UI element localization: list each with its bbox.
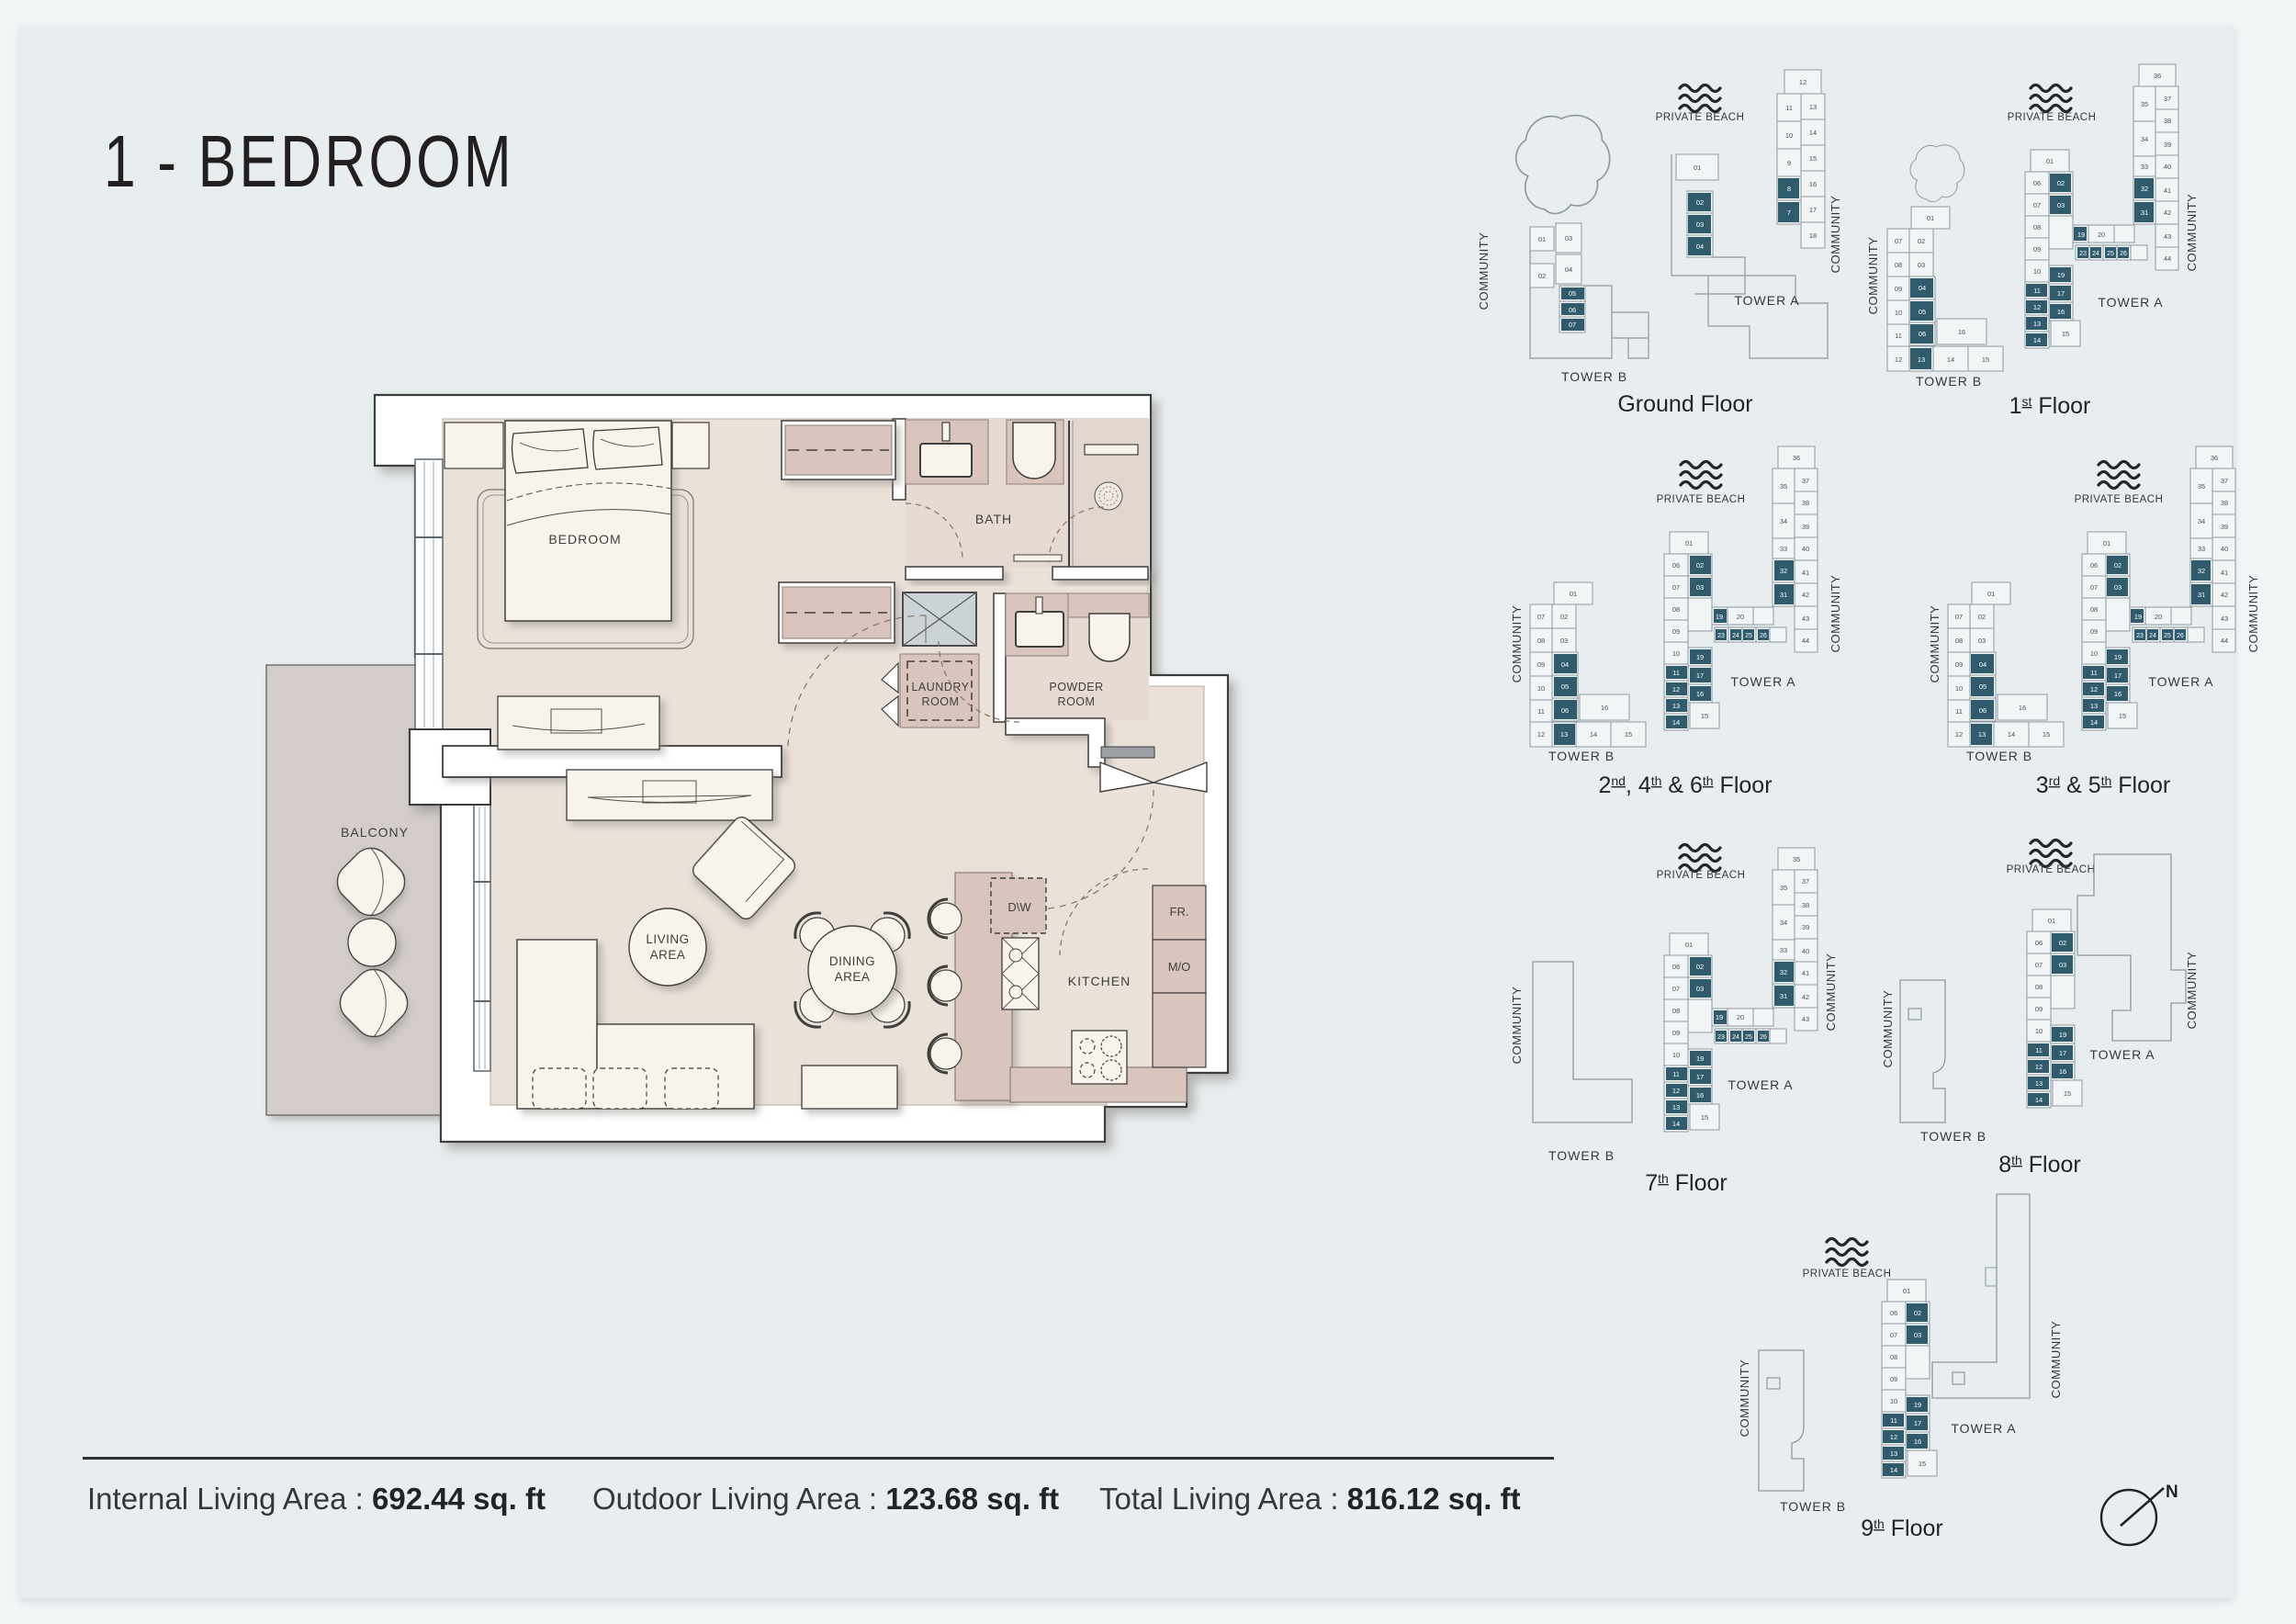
- svg-text:16: 16: [1958, 328, 1965, 336]
- svg-text:11: 11: [1890, 1416, 1897, 1425]
- svg-text:13: 13: [2090, 702, 2098, 710]
- svg-text:33: 33: [1780, 946, 1787, 954]
- svg-text:34: 34: [1780, 919, 1787, 927]
- svg-text:35: 35: [1793, 855, 1800, 863]
- svg-text:06: 06: [2035, 939, 2043, 947]
- svg-text:17: 17: [1809, 206, 1817, 214]
- svg-text:12: 12: [1955, 730, 1963, 739]
- svg-text:09: 09: [1672, 1029, 1680, 1037]
- svg-text:07: 07: [1569, 321, 1576, 329]
- svg-text:03: 03: [1696, 220, 1704, 229]
- svg-text:42: 42: [1802, 993, 1809, 1001]
- svg-text:25: 25: [2164, 633, 2171, 639]
- svg-text:19: 19: [1696, 1054, 1704, 1063]
- svg-text:16: 16: [2059, 1067, 2066, 1076]
- svg-text:06: 06: [1979, 706, 1986, 715]
- svg-text:05: 05: [1919, 308, 1926, 316]
- svg-text:43: 43: [1802, 615, 1809, 623]
- svg-text:25: 25: [1745, 633, 1752, 639]
- svg-text:COMMUNITY: COMMUNITY: [1829, 575, 1842, 653]
- svg-text:PRIVATE BEACH: PRIVATE BEACH: [2075, 494, 2164, 505]
- svg-text:17: 17: [1914, 1419, 1921, 1427]
- svg-text:23: 23: [1717, 633, 1725, 639]
- svg-text:34: 34: [1780, 517, 1787, 525]
- svg-text:15: 15: [2064, 1089, 2071, 1098]
- svg-text:31: 31: [2198, 591, 2205, 599]
- svg-text:10: 10: [1890, 1397, 1897, 1405]
- svg-text:01: 01: [1903, 1287, 1910, 1295]
- svg-text:41: 41: [1802, 969, 1809, 977]
- svg-text:TOWER A: TOWER A: [2098, 295, 2163, 310]
- svg-text:23: 23: [2079, 251, 2087, 257]
- svg-text:14: 14: [2035, 1096, 2043, 1104]
- svg-text:11: 11: [1785, 104, 1793, 112]
- svg-text:24: 24: [2149, 633, 2156, 639]
- svg-text:07: 07: [1672, 583, 1680, 592]
- svg-text:13: 13: [1890, 1449, 1897, 1458]
- svg-text:14: 14: [2090, 718, 2098, 727]
- svg-text:12: 12: [1799, 78, 1806, 86]
- svg-text:39: 39: [2221, 523, 2228, 531]
- svg-text:39: 39: [2164, 141, 2171, 149]
- svg-text:13: 13: [1809, 103, 1817, 111]
- svg-text:10: 10: [1785, 131, 1793, 140]
- svg-text:COMMUNITY: COMMUNITY: [1477, 232, 1491, 310]
- svg-text:43: 43: [1802, 1015, 1809, 1023]
- svg-text:40: 40: [1802, 545, 1809, 553]
- svg-text:9th Floor: 9th Floor: [1861, 1516, 1943, 1541]
- svg-text:44: 44: [2164, 254, 2171, 263]
- svg-text:14: 14: [1672, 1120, 1680, 1128]
- svg-text:COMMUNITY: COMMUNITY: [1829, 196, 1842, 274]
- svg-text:08: 08: [2033, 223, 2041, 231]
- svg-text:03: 03: [1696, 583, 1704, 592]
- svg-text:41: 41: [2164, 186, 2171, 195]
- svg-text:07: 07: [1537, 613, 1545, 621]
- svg-text:06: 06: [1672, 561, 1680, 570]
- svg-text:12: 12: [2035, 1063, 2043, 1071]
- svg-text:09: 09: [2035, 1005, 2043, 1013]
- svg-text:14: 14: [1809, 129, 1817, 137]
- svg-text:09: 09: [1672, 627, 1680, 636]
- svg-text:03: 03: [1918, 261, 1925, 269]
- svg-text:N: N: [2166, 1483, 2178, 1502]
- svg-text:13: 13: [1918, 355, 1925, 364]
- svg-text:23: 23: [2136, 633, 2144, 639]
- svg-text:05: 05: [1979, 682, 1986, 691]
- svg-text:40: 40: [2164, 163, 2171, 171]
- svg-text:PRIVATE BEACH: PRIVATE BEACH: [1657, 494, 1746, 505]
- svg-text:TOWER B: TOWER B: [1561, 369, 1627, 384]
- svg-text:09: 09: [1895, 285, 1902, 293]
- svg-text:03: 03: [2059, 961, 2066, 969]
- svg-text:12: 12: [1895, 355, 1902, 364]
- svg-text:03: 03: [2057, 201, 2065, 209]
- svg-text:02: 02: [1696, 561, 1704, 570]
- svg-text:24: 24: [1732, 633, 1739, 639]
- svg-text:15: 15: [1701, 1113, 1708, 1122]
- svg-text:35: 35: [2141, 100, 2148, 108]
- svg-text:42: 42: [1802, 591, 1809, 599]
- svg-text:COMMUNITY: COMMUNITY: [1824, 953, 1838, 1032]
- svg-text:07: 07: [1672, 985, 1680, 993]
- svg-text:36: 36: [1793, 454, 1800, 462]
- svg-text:TOWER A: TOWER A: [1728, 1077, 1793, 1092]
- svg-text:04: 04: [1919, 284, 1926, 292]
- svg-text:06: 06: [2033, 179, 2041, 187]
- svg-text:PRIVATE BEACH: PRIVATE BEACH: [2008, 112, 2097, 123]
- svg-text:12: 12: [1672, 1087, 1680, 1095]
- svg-text:13: 13: [1978, 730, 1986, 739]
- svg-text:12: 12: [1672, 685, 1680, 694]
- svg-text:08: 08: [2035, 983, 2043, 991]
- svg-text:01: 01: [1685, 941, 1693, 949]
- svg-text:06: 06: [1569, 306, 1576, 314]
- svg-text:34: 34: [2198, 517, 2205, 525]
- svg-text:03: 03: [1914, 1331, 1921, 1339]
- svg-text:14: 14: [2033, 336, 2041, 344]
- svg-text:02: 02: [1696, 198, 1704, 207]
- svg-text:08: 08: [1955, 637, 1963, 645]
- svg-text:44: 44: [1802, 637, 1809, 645]
- svg-text:10: 10: [2033, 267, 2041, 276]
- svg-text:02: 02: [2059, 939, 2066, 947]
- svg-text:39: 39: [1802, 523, 1809, 531]
- svg-text:08: 08: [2090, 605, 2098, 614]
- svg-text:36: 36: [2211, 454, 2218, 462]
- svg-text:02: 02: [1696, 963, 1704, 971]
- svg-text:20: 20: [2098, 231, 2105, 239]
- svg-text:07: 07: [2090, 583, 2098, 592]
- svg-text:2nd, 4th & 6th Floor: 2nd, 4th & 6th Floor: [1598, 773, 1772, 798]
- svg-text:20: 20: [1737, 1013, 1744, 1021]
- svg-text:26: 26: [1760, 1034, 1767, 1041]
- svg-text:37: 37: [2164, 95, 2171, 103]
- svg-text:9: 9: [1787, 159, 1791, 167]
- svg-text:19: 19: [2114, 653, 2122, 661]
- svg-text:03: 03: [1560, 637, 1568, 645]
- svg-text:TOWER A: TOWER A: [1730, 674, 1795, 689]
- svg-text:09: 09: [1955, 660, 1963, 669]
- svg-text:7th Floor: 7th Floor: [1645, 1170, 1728, 1196]
- svg-text:03: 03: [1978, 637, 1986, 645]
- svg-text:TOWER B: TOWER B: [1966, 749, 2032, 763]
- svg-text:01: 01: [1685, 539, 1693, 547]
- svg-text:04: 04: [1561, 660, 1569, 669]
- svg-text:15: 15: [1919, 1460, 1926, 1468]
- svg-text:31: 31: [1780, 992, 1787, 1000]
- svg-text:12: 12: [1890, 1433, 1897, 1441]
- svg-text:12: 12: [1537, 730, 1545, 739]
- svg-text:14: 14: [2008, 730, 2015, 739]
- svg-text:40: 40: [1802, 947, 1809, 955]
- svg-text:05: 05: [1561, 682, 1569, 691]
- svg-text:14: 14: [1672, 718, 1680, 727]
- svg-text:04: 04: [1696, 242, 1704, 251]
- svg-text:COMMUNITY: COMMUNITY: [1510, 987, 1524, 1065]
- svg-text:24: 24: [2092, 251, 2099, 257]
- svg-text:16: 16: [1696, 690, 1704, 698]
- svg-text:19: 19: [1914, 1401, 1921, 1409]
- svg-text:06: 06: [1672, 963, 1680, 971]
- svg-text:14: 14: [1890, 1466, 1897, 1474]
- svg-text:10: 10: [2035, 1027, 2043, 1035]
- svg-text:18: 18: [1809, 231, 1817, 240]
- svg-text:COMMUNITY: COMMUNITY: [2049, 1321, 2063, 1399]
- svg-text:02: 02: [1918, 237, 1925, 245]
- svg-text:09: 09: [2090, 627, 2098, 636]
- svg-text:08: 08: [1537, 637, 1545, 645]
- svg-text:10: 10: [1537, 684, 1545, 693]
- svg-text:11: 11: [2033, 287, 2041, 295]
- svg-text:16: 16: [2114, 690, 2122, 698]
- svg-text:32: 32: [2198, 567, 2205, 575]
- svg-text:3rd & 5th Floor: 3rd & 5th Floor: [2036, 773, 2170, 798]
- svg-text:TOWER B: TOWER B: [1548, 1148, 1615, 1163]
- svg-text:TOWER B: TOWER B: [1920, 1129, 1986, 1144]
- svg-text:44: 44: [2221, 637, 2228, 645]
- svg-text:10: 10: [1672, 649, 1680, 658]
- svg-text:25: 25: [1745, 1034, 1752, 1041]
- svg-text:17: 17: [2057, 289, 2065, 298]
- svg-text:01: 01: [2046, 157, 2054, 165]
- svg-text:COMMUNITY: COMMUNITY: [1881, 990, 1895, 1068]
- svg-text:15: 15: [1625, 730, 1632, 739]
- svg-text:10: 10: [1895, 309, 1902, 317]
- svg-text:17: 17: [2059, 1049, 2066, 1057]
- svg-text:15: 15: [1982, 355, 1989, 364]
- svg-text:32: 32: [1780, 567, 1787, 575]
- svg-text:16: 16: [2019, 704, 2026, 712]
- svg-text:26: 26: [1760, 633, 1767, 639]
- svg-text:43: 43: [2164, 232, 2171, 241]
- svg-text:33: 33: [2141, 163, 2148, 171]
- svg-text:01: 01: [1538, 235, 1546, 243]
- svg-text:13: 13: [2033, 320, 2041, 328]
- svg-text:12: 12: [2090, 685, 2098, 694]
- svg-text:PRIVATE BEACH: PRIVATE BEACH: [1803, 1269, 1892, 1280]
- svg-text:01: 01: [1927, 214, 1934, 222]
- svg-text:7: 7: [1787, 209, 1791, 217]
- svg-text:32: 32: [1780, 968, 1787, 976]
- svg-text:37: 37: [1802, 477, 1809, 485]
- svg-text:16: 16: [2057, 308, 2065, 316]
- svg-text:PRIVATE BEACH: PRIVATE BEACH: [2007, 864, 2096, 875]
- svg-text:10: 10: [1672, 1051, 1680, 1059]
- svg-text:04: 04: [1979, 660, 1986, 669]
- svg-text:TOWER B: TOWER B: [1780, 1499, 1846, 1514]
- svg-text:20: 20: [1737, 613, 1744, 621]
- svg-text:09: 09: [1890, 1375, 1897, 1383]
- svg-text:11: 11: [1672, 669, 1680, 677]
- svg-text:23: 23: [1717, 1034, 1725, 1041]
- svg-text:33: 33: [1780, 545, 1787, 553]
- svg-text:09: 09: [1537, 660, 1545, 669]
- svg-text:02: 02: [1538, 272, 1546, 280]
- svg-text:06: 06: [1919, 330, 1926, 338]
- svg-text:35: 35: [1780, 482, 1787, 491]
- svg-text:38: 38: [1802, 499, 1809, 507]
- svg-text:24: 24: [1732, 1034, 1739, 1041]
- svg-text:19: 19: [2077, 231, 2085, 239]
- svg-text:01: 01: [1987, 590, 1995, 598]
- svg-text:11: 11: [2035, 1046, 2043, 1054]
- svg-text:42: 42: [2164, 209, 2171, 217]
- svg-text:06: 06: [2090, 561, 2098, 570]
- svg-text:TOWER B: TOWER B: [1916, 374, 1982, 389]
- svg-text:05: 05: [1569, 289, 1576, 298]
- svg-text:39: 39: [1802, 923, 1809, 931]
- svg-text:07: 07: [1890, 1331, 1897, 1339]
- svg-text:19: 19: [2057, 271, 2065, 279]
- svg-text:11: 11: [1955, 707, 1963, 716]
- svg-text:COMMUNITY: COMMUNITY: [1866, 237, 1880, 315]
- svg-text:11: 11: [1537, 707, 1545, 716]
- svg-text:15: 15: [2062, 330, 2069, 338]
- svg-text:COMMUNITY: COMMUNITY: [2246, 575, 2260, 653]
- svg-text:03: 03: [1696, 985, 1704, 993]
- svg-text:25: 25: [2107, 251, 2114, 257]
- svg-text:41: 41: [2221, 569, 2228, 577]
- svg-text:COMMUNITY: COMMUNITY: [1928, 605, 1941, 683]
- svg-text:07: 07: [2035, 961, 2043, 969]
- svg-text:16: 16: [1601, 704, 1608, 712]
- svg-text:03: 03: [1565, 234, 1572, 242]
- svg-text:15: 15: [1701, 712, 1708, 720]
- svg-text:09: 09: [2033, 245, 2041, 254]
- svg-text:01: 01: [1694, 164, 1701, 172]
- svg-text:43: 43: [2221, 615, 2228, 623]
- svg-text:16: 16: [1809, 180, 1817, 188]
- svg-text:06: 06: [1890, 1309, 1897, 1317]
- svg-text:08: 08: [1895, 261, 1902, 269]
- svg-text:11: 11: [2090, 669, 2098, 677]
- svg-text:26: 26: [2120, 251, 2127, 257]
- svg-text:14: 14: [1947, 355, 1954, 364]
- svg-text:19: 19: [1716, 613, 1723, 621]
- svg-text:TOWER A: TOWER A: [1951, 1421, 2016, 1436]
- svg-text:12: 12: [2033, 303, 2041, 311]
- svg-text:02: 02: [1914, 1309, 1921, 1317]
- svg-text:17: 17: [1696, 671, 1704, 680]
- svg-text:19: 19: [1716, 1013, 1723, 1021]
- svg-text:02: 02: [2114, 561, 2122, 570]
- svg-text:07: 07: [1895, 237, 1902, 245]
- svg-text:35: 35: [1780, 884, 1787, 892]
- svg-text:Ground Floor: Ground Floor: [1617, 391, 1752, 417]
- svg-text:8th Floor: 8th Floor: [1998, 1152, 2081, 1178]
- svg-text:36: 36: [2154, 72, 2161, 80]
- svg-text:10: 10: [1955, 684, 1963, 693]
- svg-text:PRIVATE BEACH: PRIVATE BEACH: [1656, 112, 1745, 123]
- svg-text:17: 17: [1696, 1073, 1704, 1081]
- svg-text:COMMUNITY: COMMUNITY: [1738, 1359, 1751, 1438]
- svg-text:14: 14: [1590, 730, 1597, 739]
- svg-text:COMMUNITY: COMMUNITY: [2185, 194, 2199, 272]
- svg-text:01: 01: [1570, 590, 1577, 598]
- svg-text:35: 35: [2198, 482, 2205, 491]
- svg-text:15: 15: [2119, 712, 2126, 720]
- svg-text:13: 13: [1672, 702, 1680, 710]
- svg-text:TOWER A: TOWER A: [2089, 1047, 2155, 1062]
- svg-text:19: 19: [2059, 1031, 2066, 1039]
- svg-text:33: 33: [2198, 545, 2205, 553]
- svg-text:16: 16: [1696, 1091, 1704, 1100]
- svg-text:02: 02: [2057, 179, 2065, 187]
- svg-text:02: 02: [1560, 613, 1568, 621]
- svg-text:08: 08: [1672, 1007, 1680, 1015]
- svg-text:01: 01: [2048, 917, 2055, 925]
- svg-text:03: 03: [2114, 583, 2122, 592]
- svg-text:TOWER A: TOWER A: [1734, 293, 1799, 308]
- svg-text:31: 31: [2141, 209, 2148, 217]
- svg-text:11: 11: [1672, 1070, 1680, 1078]
- svg-text:26: 26: [2177, 633, 2184, 639]
- svg-text:13: 13: [1672, 1103, 1680, 1111]
- svg-text:8: 8: [1787, 185, 1791, 193]
- svg-text:38: 38: [1802, 901, 1809, 909]
- svg-text:07: 07: [2033, 201, 2041, 209]
- svg-text:1st Floor: 1st Floor: [2009, 393, 2091, 419]
- svg-text:PRIVATE BEACH: PRIVATE BEACH: [1657, 870, 1746, 881]
- svg-text:34: 34: [2141, 135, 2148, 143]
- svg-text:38: 38: [2164, 117, 2171, 125]
- svg-text:TOWER B: TOWER B: [1548, 749, 1615, 763]
- svg-text:10: 10: [2090, 649, 2098, 658]
- svg-text:COMMUNITY: COMMUNITY: [2185, 952, 2199, 1030]
- svg-text:20: 20: [2155, 613, 2162, 621]
- svg-text:13: 13: [1560, 730, 1568, 739]
- svg-text:31: 31: [1780, 591, 1787, 599]
- svg-text:15: 15: [1809, 154, 1817, 163]
- svg-text:11: 11: [1895, 332, 1902, 340]
- svg-text:42: 42: [2221, 591, 2228, 599]
- svg-text:38: 38: [2221, 499, 2228, 507]
- svg-text:COMMUNITY: COMMUNITY: [1510, 605, 1524, 683]
- svg-text:37: 37: [2221, 477, 2228, 485]
- svg-text:08: 08: [1890, 1353, 1897, 1361]
- svg-text:08: 08: [1672, 605, 1680, 614]
- svg-text:37: 37: [1802, 877, 1809, 885]
- svg-text:02: 02: [1978, 613, 1986, 621]
- svg-text:16: 16: [1914, 1438, 1921, 1446]
- svg-text:15: 15: [2043, 730, 2050, 739]
- svg-text:41: 41: [1802, 569, 1809, 577]
- svg-text:17: 17: [2114, 671, 2122, 680]
- svg-text:04: 04: [1565, 265, 1572, 274]
- svg-text:13: 13: [2035, 1079, 2043, 1088]
- svg-text:TOWER A: TOWER A: [2148, 674, 2213, 689]
- svg-text:06: 06: [1561, 706, 1569, 715]
- svg-text:40: 40: [2221, 545, 2228, 553]
- svg-text:19: 19: [1696, 653, 1704, 661]
- svg-text:01: 01: [2103, 539, 2110, 547]
- svg-text:19: 19: [2134, 613, 2142, 621]
- svg-text:07: 07: [1955, 613, 1963, 621]
- svg-text:32: 32: [2141, 185, 2148, 193]
